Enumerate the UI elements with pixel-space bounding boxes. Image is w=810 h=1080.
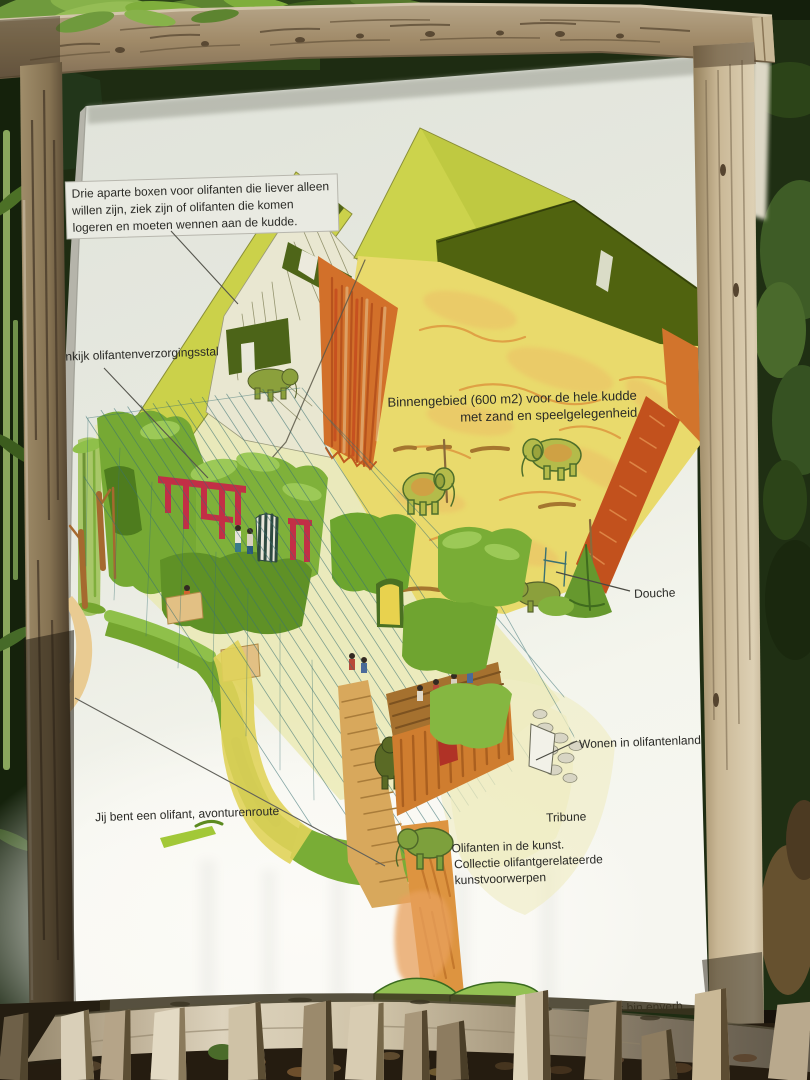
svg-text:Douche: Douche	[634, 585, 676, 600]
svg-text:Tribune: Tribune	[546, 809, 587, 824]
